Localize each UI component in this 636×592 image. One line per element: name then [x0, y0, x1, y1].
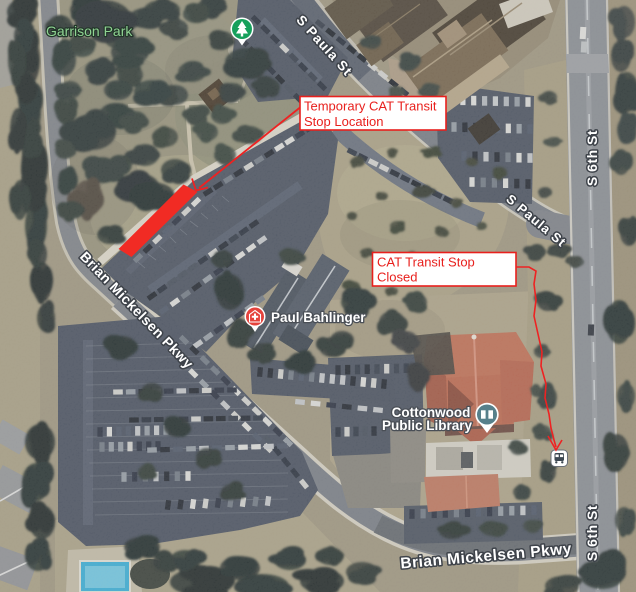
- svg-text:Closed: Closed: [377, 270, 417, 285]
- svg-text:Garrison Park: Garrison Park: [46, 23, 133, 39]
- svg-text:CAT Transit Stop: CAT Transit Stop: [377, 255, 475, 270]
- svg-text:Paul Bahlinger: Paul Bahlinger: [271, 310, 366, 325]
- svg-text:Temporary CAT Transit: Temporary CAT Transit: [304, 99, 437, 114]
- svg-text:Public Library: Public Library: [382, 418, 473, 433]
- svg-text:Stop Location: Stop Location: [304, 114, 384, 129]
- svg-text:S 6th St: S 6th St: [584, 130, 600, 186]
- svg-text:S 6th St: S 6th St: [584, 505, 600, 561]
